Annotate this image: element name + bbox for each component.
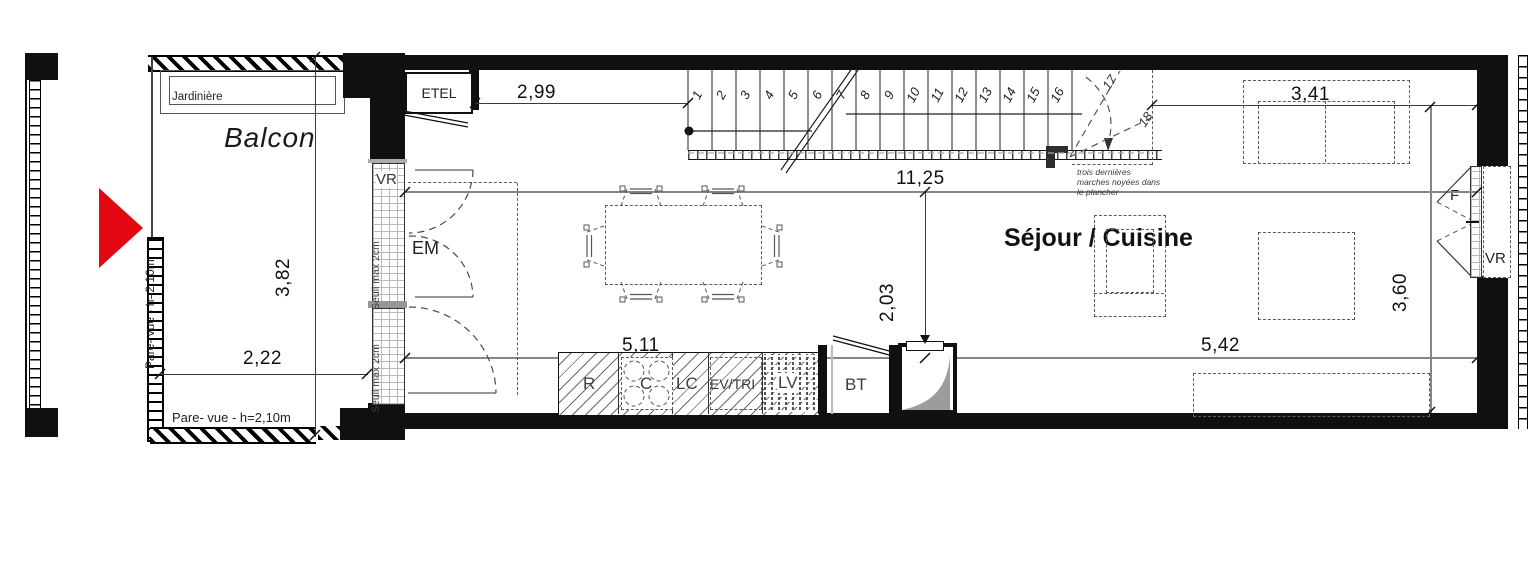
shaft-access-slot (906, 341, 944, 351)
wall-corner-bottom-left (340, 408, 373, 440)
dishwasher-label: LV (777, 373, 799, 393)
dimension-line-right-depth (1430, 105, 1432, 413)
kitchen-divider-1 (618, 352, 619, 414)
stair-step-number: 10 (903, 84, 923, 104)
armchair-seat (1106, 229, 1154, 293)
stair-step-number: 9 (881, 88, 898, 101)
stair-winder-radials (1070, 71, 1151, 157)
etel-label: ETEL (421, 85, 456, 101)
etel-closet: ETEL (405, 72, 473, 114)
dimension-mid-height: 2,03 (877, 283, 899, 322)
armchair-front-line (1094, 293, 1164, 294)
kitchen-divider-4 (762, 352, 763, 414)
sofa-seat (1258, 101, 1395, 164)
floor-plan: Jardinière Balcon Pare- vue - h=2,10m Pa… (0, 0, 1528, 572)
wall-right-lower (1477, 276, 1508, 429)
wall-post-bt-right (889, 345, 898, 414)
chair-symbol (620, 186, 662, 206)
stair-step-number: 4 (761, 88, 778, 101)
utility-space-label: EM (412, 238, 439, 259)
chair-symbol (620, 282, 662, 302)
stair-step-number: 8 (857, 87, 874, 101)
door-leaf-lines (408, 170, 496, 393)
threshold-label-1: Seuil max 2cm (370, 241, 382, 310)
stair-step-number: 5 (785, 87, 802, 101)
neighbour-rail-edge-line (25, 53, 27, 437)
stair-step-number: 17 (1099, 72, 1120, 93)
fridge-label: R (583, 374, 595, 394)
technical-shaft (898, 343, 957, 414)
chair-symbol (762, 225, 782, 267)
privacy-screen-label-bottom: Pare- vue - h=2,10m (172, 410, 291, 425)
dimension-line-room-length (405, 191, 1477, 193)
wall-post-bt-left (818, 345, 827, 414)
roller-shutter-label-right: VR (1485, 250, 1506, 267)
neighbour-rail-cap-bottom (27, 408, 58, 437)
bt-door-leaf (833, 336, 897, 357)
stair-bottom-edge (688, 150, 1162, 160)
stair-step-number: 3 (737, 87, 754, 101)
stair-step-number: 6 (809, 87, 826, 101)
dimension-room-length: 11,25 (896, 168, 945, 190)
dimension-line-entry (475, 103, 688, 104)
dimension-right-depth: 3,60 (1390, 273, 1412, 312)
counter-label: LC (676, 374, 698, 394)
balcony-label: Balcon (224, 122, 316, 154)
dimension-line-balcony-width (158, 374, 368, 375)
bt-inner-line (831, 345, 833, 414)
chair-symbol (702, 282, 744, 302)
sink-label: EV/TRI (710, 376, 755, 392)
dimension-line-mid-height (925, 192, 926, 344)
stair-note-line3: le plancher (1077, 187, 1160, 197)
privacy-screen-label-left: Pare- vue - h=2,10m (143, 259, 157, 369)
stair-step-number: 1 (689, 88, 706, 101)
stair-step-number: 2 (712, 87, 729, 102)
stair-step-number: 15 (1023, 84, 1043, 104)
window-f-label: F (1450, 187, 1459, 204)
stair-winder-dashed-right (1152, 70, 1153, 165)
wall-top (370, 55, 1508, 70)
dimension-entry-span: 2,99 (517, 82, 556, 104)
chair-symbol (702, 186, 744, 206)
kitchen-divider-3 (708, 352, 709, 414)
planter-label: Jardinière (172, 91, 223, 103)
sofa-seat-divider (1325, 101, 1326, 162)
stair-step-number: 12 (951, 84, 971, 104)
stair-step-number: 13 (975, 84, 995, 104)
stair-step-number: 14 (999, 85, 1019, 105)
neighbour-rail (29, 80, 41, 408)
stair-note-line1: trois dernières (1077, 167, 1160, 177)
stair-note-line2: marches noyées dans (1077, 177, 1160, 187)
stair-winder-dashed-bottom (1072, 164, 1152, 165)
threshold-label-2: Seuil max 2cm (370, 344, 382, 413)
dimension-right-span: 5,42 (1201, 335, 1240, 357)
cooktop-label: C (640, 374, 652, 394)
balcony-left-edge (151, 57, 153, 238)
entry-zone-dashed-right (517, 183, 518, 395)
dining-table (605, 205, 762, 285)
wall-right-upper (1477, 55, 1508, 166)
technical-box-label: BT (845, 375, 867, 395)
reserved-unit-outline (1193, 373, 1430, 417)
wall-left-upper (370, 55, 405, 163)
chair-symbol (584, 225, 604, 267)
roller-shutter-label-left: VR (376, 171, 397, 188)
stair-step-number: 7 (833, 87, 850, 101)
door-swing-arcs (409, 170, 496, 393)
coffee-table (1258, 232, 1355, 320)
stair-note: trois dernières marches noyées dans le p… (1077, 167, 1160, 197)
stair-walking-line (685, 77, 1114, 151)
stair-step-number: 16 (1047, 84, 1067, 104)
neighbour-rail-cap-top (27, 53, 58, 80)
entrance-arrow-icon (99, 188, 143, 268)
balcony-bottom-railing (150, 427, 316, 444)
dimension-balcony-depth: 3,82 (273, 258, 295, 297)
dimension-line-balcony-depth (315, 55, 316, 437)
entry-zone-dashed-top (408, 182, 517, 183)
dimension-balcony-width: 2,22 (243, 348, 282, 370)
neighbour-wall-right (1518, 55, 1528, 429)
stair-step-number: 11 (927, 85, 947, 104)
window-f-glazing (1470, 166, 1482, 278)
